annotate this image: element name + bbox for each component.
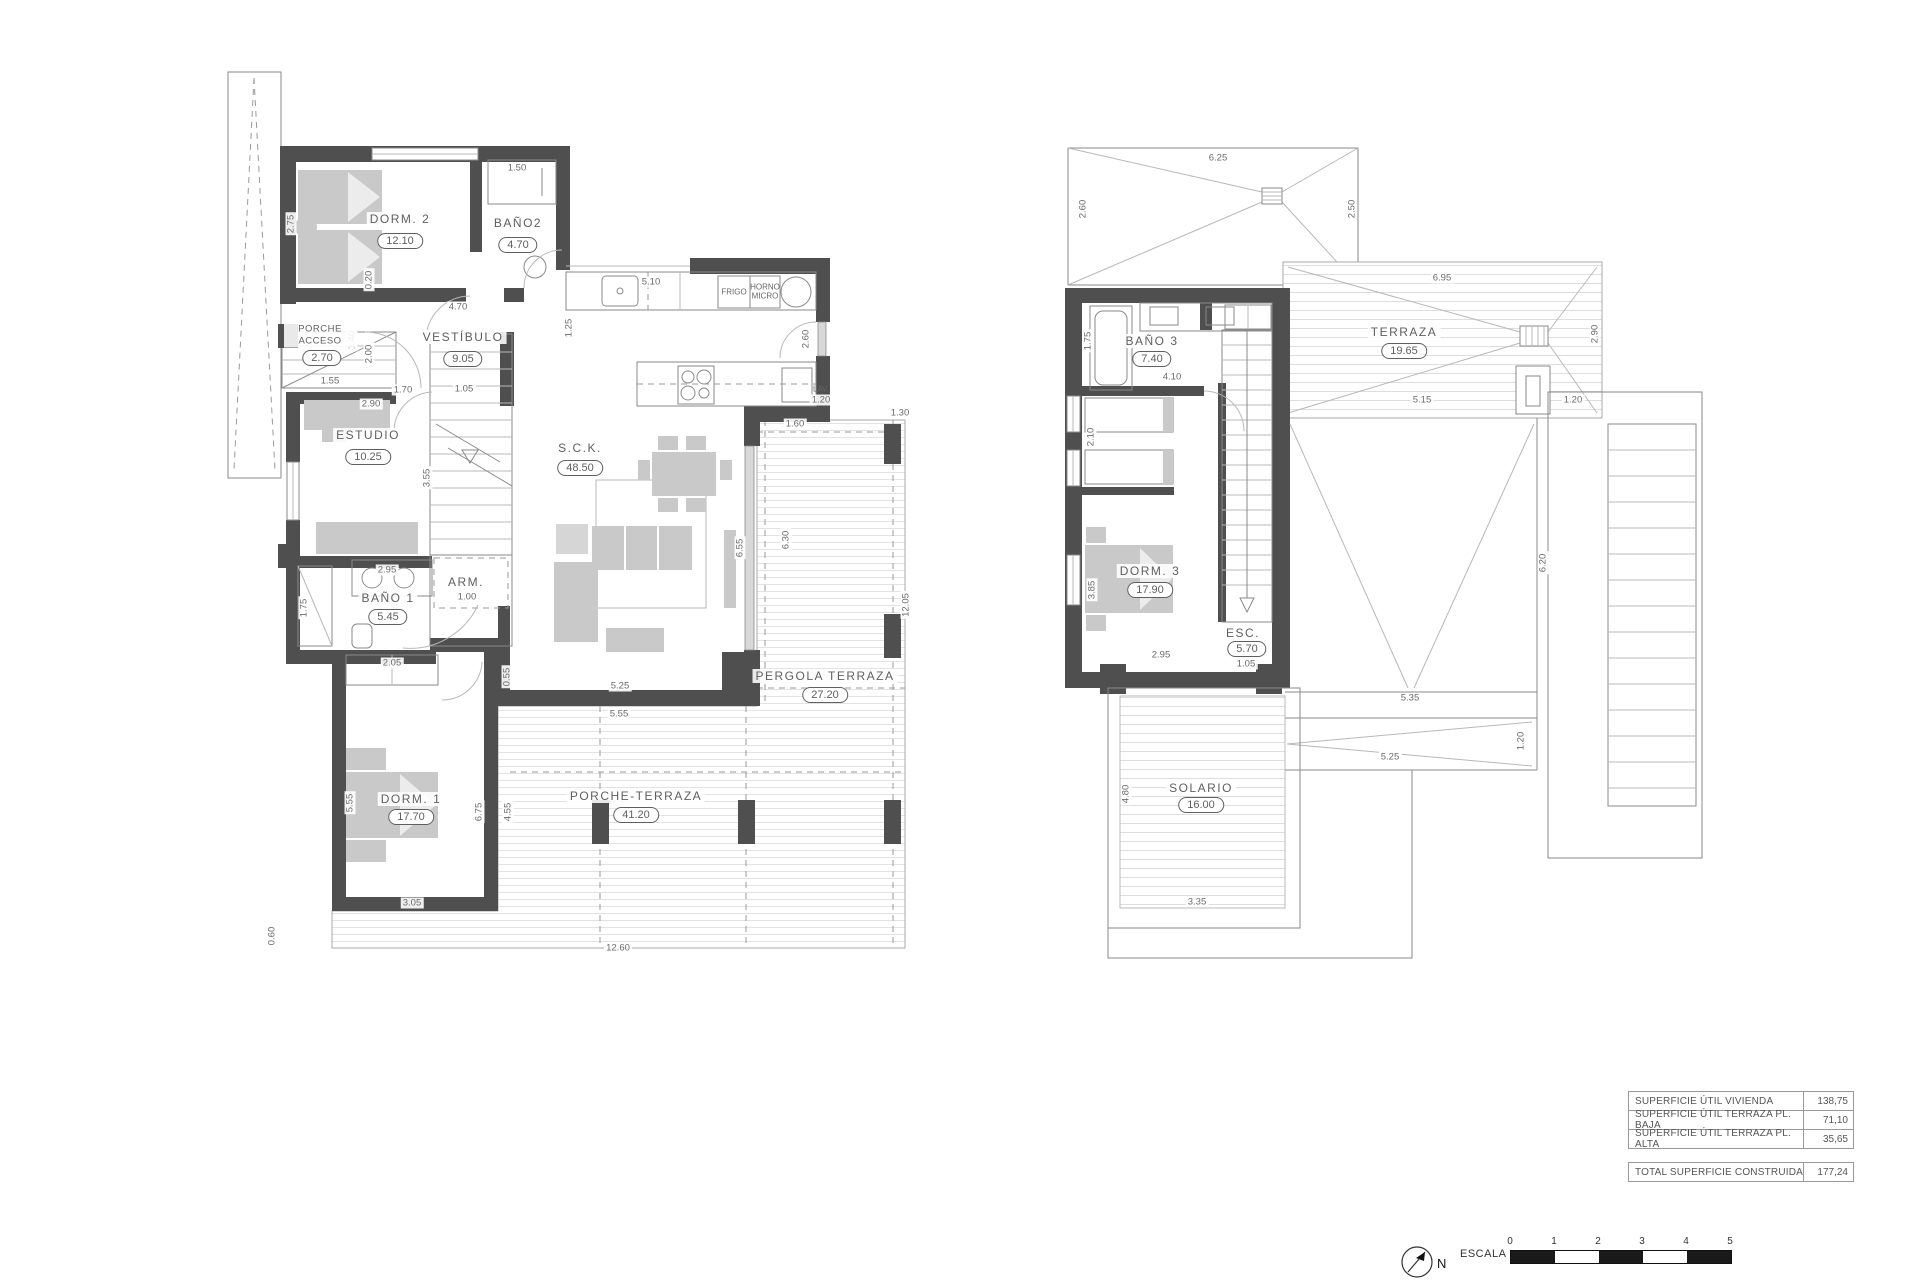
scale-segment bbox=[1643, 1251, 1687, 1263]
room-name: DORM. 1 bbox=[378, 792, 445, 806]
scale-tick: 3 bbox=[1639, 1236, 1645, 1247]
scale-tick: 0 bbox=[1507, 1236, 1513, 1247]
room-name: PERGOLA TERRAZA bbox=[753, 669, 898, 683]
microwave-label: MICRO bbox=[752, 293, 779, 302]
room-label: DORM. 3 bbox=[1117, 562, 1184, 580]
dimension-label: 4.80 bbox=[1121, 783, 1132, 806]
room-area-badge: 27.20 bbox=[802, 687, 848, 703]
scale-segment bbox=[1687, 1251, 1731, 1263]
row-value: 138,75 bbox=[1803, 1092, 1853, 1110]
room-area-badge: 7.40 bbox=[1132, 351, 1171, 367]
scale-tick: 2 bbox=[1595, 1236, 1601, 1247]
room-label: TERRAZA bbox=[1368, 323, 1441, 341]
row-label: SUPERFICIE ÚTIL TERRAZA PL. ALTA bbox=[1629, 1128, 1803, 1150]
dimension-label: 5.25 bbox=[1379, 752, 1402, 763]
room-label: PERGOLA TERRAZA bbox=[753, 667, 898, 685]
laundry-label: LAV. bbox=[813, 386, 829, 395]
fridge-label: FRIGO bbox=[721, 289, 746, 298]
table-row: SUPERFICIE ÚTIL VIVIENDA 138,75 bbox=[1628, 1091, 1854, 1111]
north-compass-icon bbox=[1396, 1240, 1440, 1280]
dimension-label: 1.05 bbox=[1235, 659, 1258, 670]
room-label: PORCHE ACCESO bbox=[284, 324, 356, 349]
dimension-label: 1.00 bbox=[456, 592, 479, 603]
dimension-label: 2.00 bbox=[364, 343, 375, 366]
dimension-label: 0.55 bbox=[502, 666, 513, 689]
room-name: S.C.K. bbox=[555, 441, 605, 455]
scale-bar: N ESCALA : 0 1 2 3 4 5 bbox=[1396, 1234, 1741, 1278]
dimension-label: 4.55 bbox=[503, 801, 514, 824]
dimension-label: 5.55 bbox=[608, 709, 631, 720]
row-value: 35,65 bbox=[1803, 1130, 1853, 1148]
room-label: BAÑO2 bbox=[491, 214, 545, 232]
floor-plan-sheet: FRIGO HORNO MICRO LAV. SUPERFICIE ÚTIL V… bbox=[0, 0, 1920, 1280]
ground-floor-geometry bbox=[228, 72, 905, 948]
row-label: SUPERFICIE ÚTIL VIVIENDA bbox=[1629, 1096, 1803, 1107]
room-name: VESTÍBULO bbox=[420, 330, 507, 344]
dimension-label: 1.30 bbox=[889, 408, 912, 419]
room-label: SOLARIO bbox=[1166, 779, 1236, 797]
room-label: VESTÍBULO bbox=[420, 328, 507, 346]
room-label: S.C.K. bbox=[555, 439, 605, 457]
table-total-row: TOTAL SUPERFICIE CONSTRUIDA 177,24 bbox=[1628, 1162, 1854, 1182]
dimension-label: 0.20 bbox=[364, 269, 375, 292]
scale-bar-segments bbox=[1510, 1250, 1732, 1264]
room-area-badge: 10.25 bbox=[345, 449, 391, 465]
dimension-label: 1.75 bbox=[1083, 330, 1094, 353]
dimension-label: 1.70 bbox=[392, 385, 415, 396]
dimension-label: 5.55 bbox=[345, 792, 356, 815]
room-name: BAÑO 3 bbox=[1122, 334, 1181, 348]
dimension-label: 2.95 bbox=[1150, 650, 1173, 661]
room-area-badge: 4.70 bbox=[498, 237, 537, 253]
upper-floor-geometry bbox=[1065, 148, 1702, 958]
dimension-label: 1.20 bbox=[810, 395, 833, 406]
dimension-label: 6.20 bbox=[1538, 552, 1549, 575]
room-label: ARM. bbox=[445, 573, 487, 591]
dimension-label: 3.85 bbox=[1087, 579, 1098, 602]
room-area-badge: 9.05 bbox=[443, 351, 482, 367]
room-label: DORM. 1 bbox=[378, 790, 445, 808]
dimension-label: 5.35 bbox=[1399, 693, 1422, 704]
dimension-label: 2.50 bbox=[1347, 198, 1358, 221]
room-label: PORCHE-TERRAZA bbox=[567, 787, 705, 805]
dimension-label: 1.25 bbox=[564, 317, 575, 340]
room-label: BAÑO 1 bbox=[358, 589, 417, 607]
table-row: SUPERFICIE ÚTIL TERRAZA PL. BAJA 71,10 bbox=[1628, 1110, 1854, 1130]
area-summary-table: SUPERFICIE ÚTIL VIVIENDA 138,75 SUPERFIC… bbox=[1628, 1092, 1854, 1182]
room-name: DORM. 3 bbox=[1117, 564, 1184, 578]
dimension-label: 12.60 bbox=[604, 943, 632, 954]
room-name: BAÑO2 bbox=[491, 216, 545, 230]
plan-drawing bbox=[0, 0, 1920, 1280]
north-label: N bbox=[1437, 1256, 1446, 1271]
dimension-label: 5.15 bbox=[1411, 395, 1434, 406]
table-row: SUPERFICIE ÚTIL TERRAZA PL. ALTA 35,65 bbox=[1628, 1129, 1854, 1149]
scale-label: ESCALA : bbox=[1460, 1248, 1513, 1260]
dimension-label: 1.75 bbox=[299, 597, 310, 620]
dimension-label: 2.95 bbox=[376, 565, 399, 576]
room-area-badge: 41.20 bbox=[613, 807, 659, 823]
room-area-badge: 17.70 bbox=[388, 809, 434, 825]
dimension-label: 2.90 bbox=[360, 399, 383, 410]
dimension-label: 6.75 bbox=[474, 801, 485, 824]
room-area-badge: 48.50 bbox=[557, 460, 603, 476]
dimension-label: 2.60 bbox=[1078, 198, 1089, 221]
row-label: TOTAL SUPERFICIE CONSTRUIDA bbox=[1629, 1167, 1803, 1178]
dimension-label: 3.55 bbox=[422, 467, 433, 490]
room-label: BAÑO 3 bbox=[1122, 332, 1181, 350]
scale-segment bbox=[1555, 1251, 1599, 1263]
room-area-badge: 5.45 bbox=[368, 609, 407, 625]
dimension-label: 1.60 bbox=[784, 419, 807, 430]
room-name: ARM. bbox=[445, 575, 487, 589]
room-area-badge: 12.10 bbox=[377, 233, 423, 249]
scale-segment bbox=[1511, 1251, 1555, 1263]
room-name: DORM. 2 bbox=[367, 212, 434, 226]
dimension-label: 1.05 bbox=[453, 384, 476, 395]
scale-tick: 1 bbox=[1551, 1236, 1557, 1247]
dimension-label: 0.60 bbox=[267, 925, 278, 948]
scale-segment bbox=[1599, 1251, 1643, 1263]
room-label: ESTUDIO bbox=[333, 426, 403, 444]
room-name: PORCHE ACCESO bbox=[284, 324, 356, 348]
room-name: ESC. bbox=[1223, 626, 1263, 640]
room-area-badge: 2.70 bbox=[302, 350, 341, 366]
dimension-label: 5.10 bbox=[640, 277, 663, 288]
dimension-label: 1.55 bbox=[319, 376, 342, 387]
dimension-label: 6.55 bbox=[735, 537, 746, 560]
dimension-label: 2.90 bbox=[1590, 323, 1601, 346]
dimension-label: 4.70 bbox=[447, 302, 470, 313]
scale-tick: 4 bbox=[1683, 1236, 1689, 1247]
room-area-badge: 19.65 bbox=[1381, 343, 1427, 359]
dimension-label: 1.20 bbox=[1516, 730, 1527, 753]
dimension-label: 6.30 bbox=[781, 529, 792, 552]
scale-tick: 5 bbox=[1727, 1236, 1733, 1247]
room-label: ESC. bbox=[1223, 624, 1263, 642]
room-name: BAÑO 1 bbox=[358, 591, 417, 605]
room-label: DORM. 2 bbox=[367, 210, 434, 228]
room-area-badge: 16.00 bbox=[1178, 797, 1224, 813]
dimension-label: 3.35 bbox=[1186, 897, 1209, 908]
dimension-label: 1.50 bbox=[506, 163, 529, 174]
room-name: PORCHE-TERRAZA bbox=[567, 789, 705, 803]
dimension-label: 4.10 bbox=[1161, 372, 1184, 383]
dimension-label: 2.60 bbox=[801, 328, 812, 351]
dimension-label: 6.95 bbox=[1431, 273, 1454, 284]
dimension-label: 12.05 bbox=[901, 591, 912, 619]
dimension-label: 3.05 bbox=[401, 898, 424, 909]
dimension-label: 1.20 bbox=[1562, 395, 1585, 406]
dimension-label: 6.25 bbox=[1207, 153, 1230, 164]
row-value: 177,24 bbox=[1803, 1163, 1853, 1181]
dimension-label: 2.10 bbox=[1086, 426, 1097, 449]
room-area-badge: 17.90 bbox=[1127, 582, 1173, 598]
room-name: SOLARIO bbox=[1166, 781, 1236, 795]
dimension-label: 2.05 bbox=[381, 658, 404, 669]
dimension-label: 5.25 bbox=[609, 681, 632, 692]
row-value: 71,10 bbox=[1803, 1111, 1853, 1129]
dimension-label: 2.75 bbox=[286, 213, 297, 236]
room-area-badge: 5.70 bbox=[1227, 641, 1266, 657]
room-name: ESTUDIO bbox=[333, 428, 403, 442]
room-name: TERRAZA bbox=[1368, 325, 1441, 339]
